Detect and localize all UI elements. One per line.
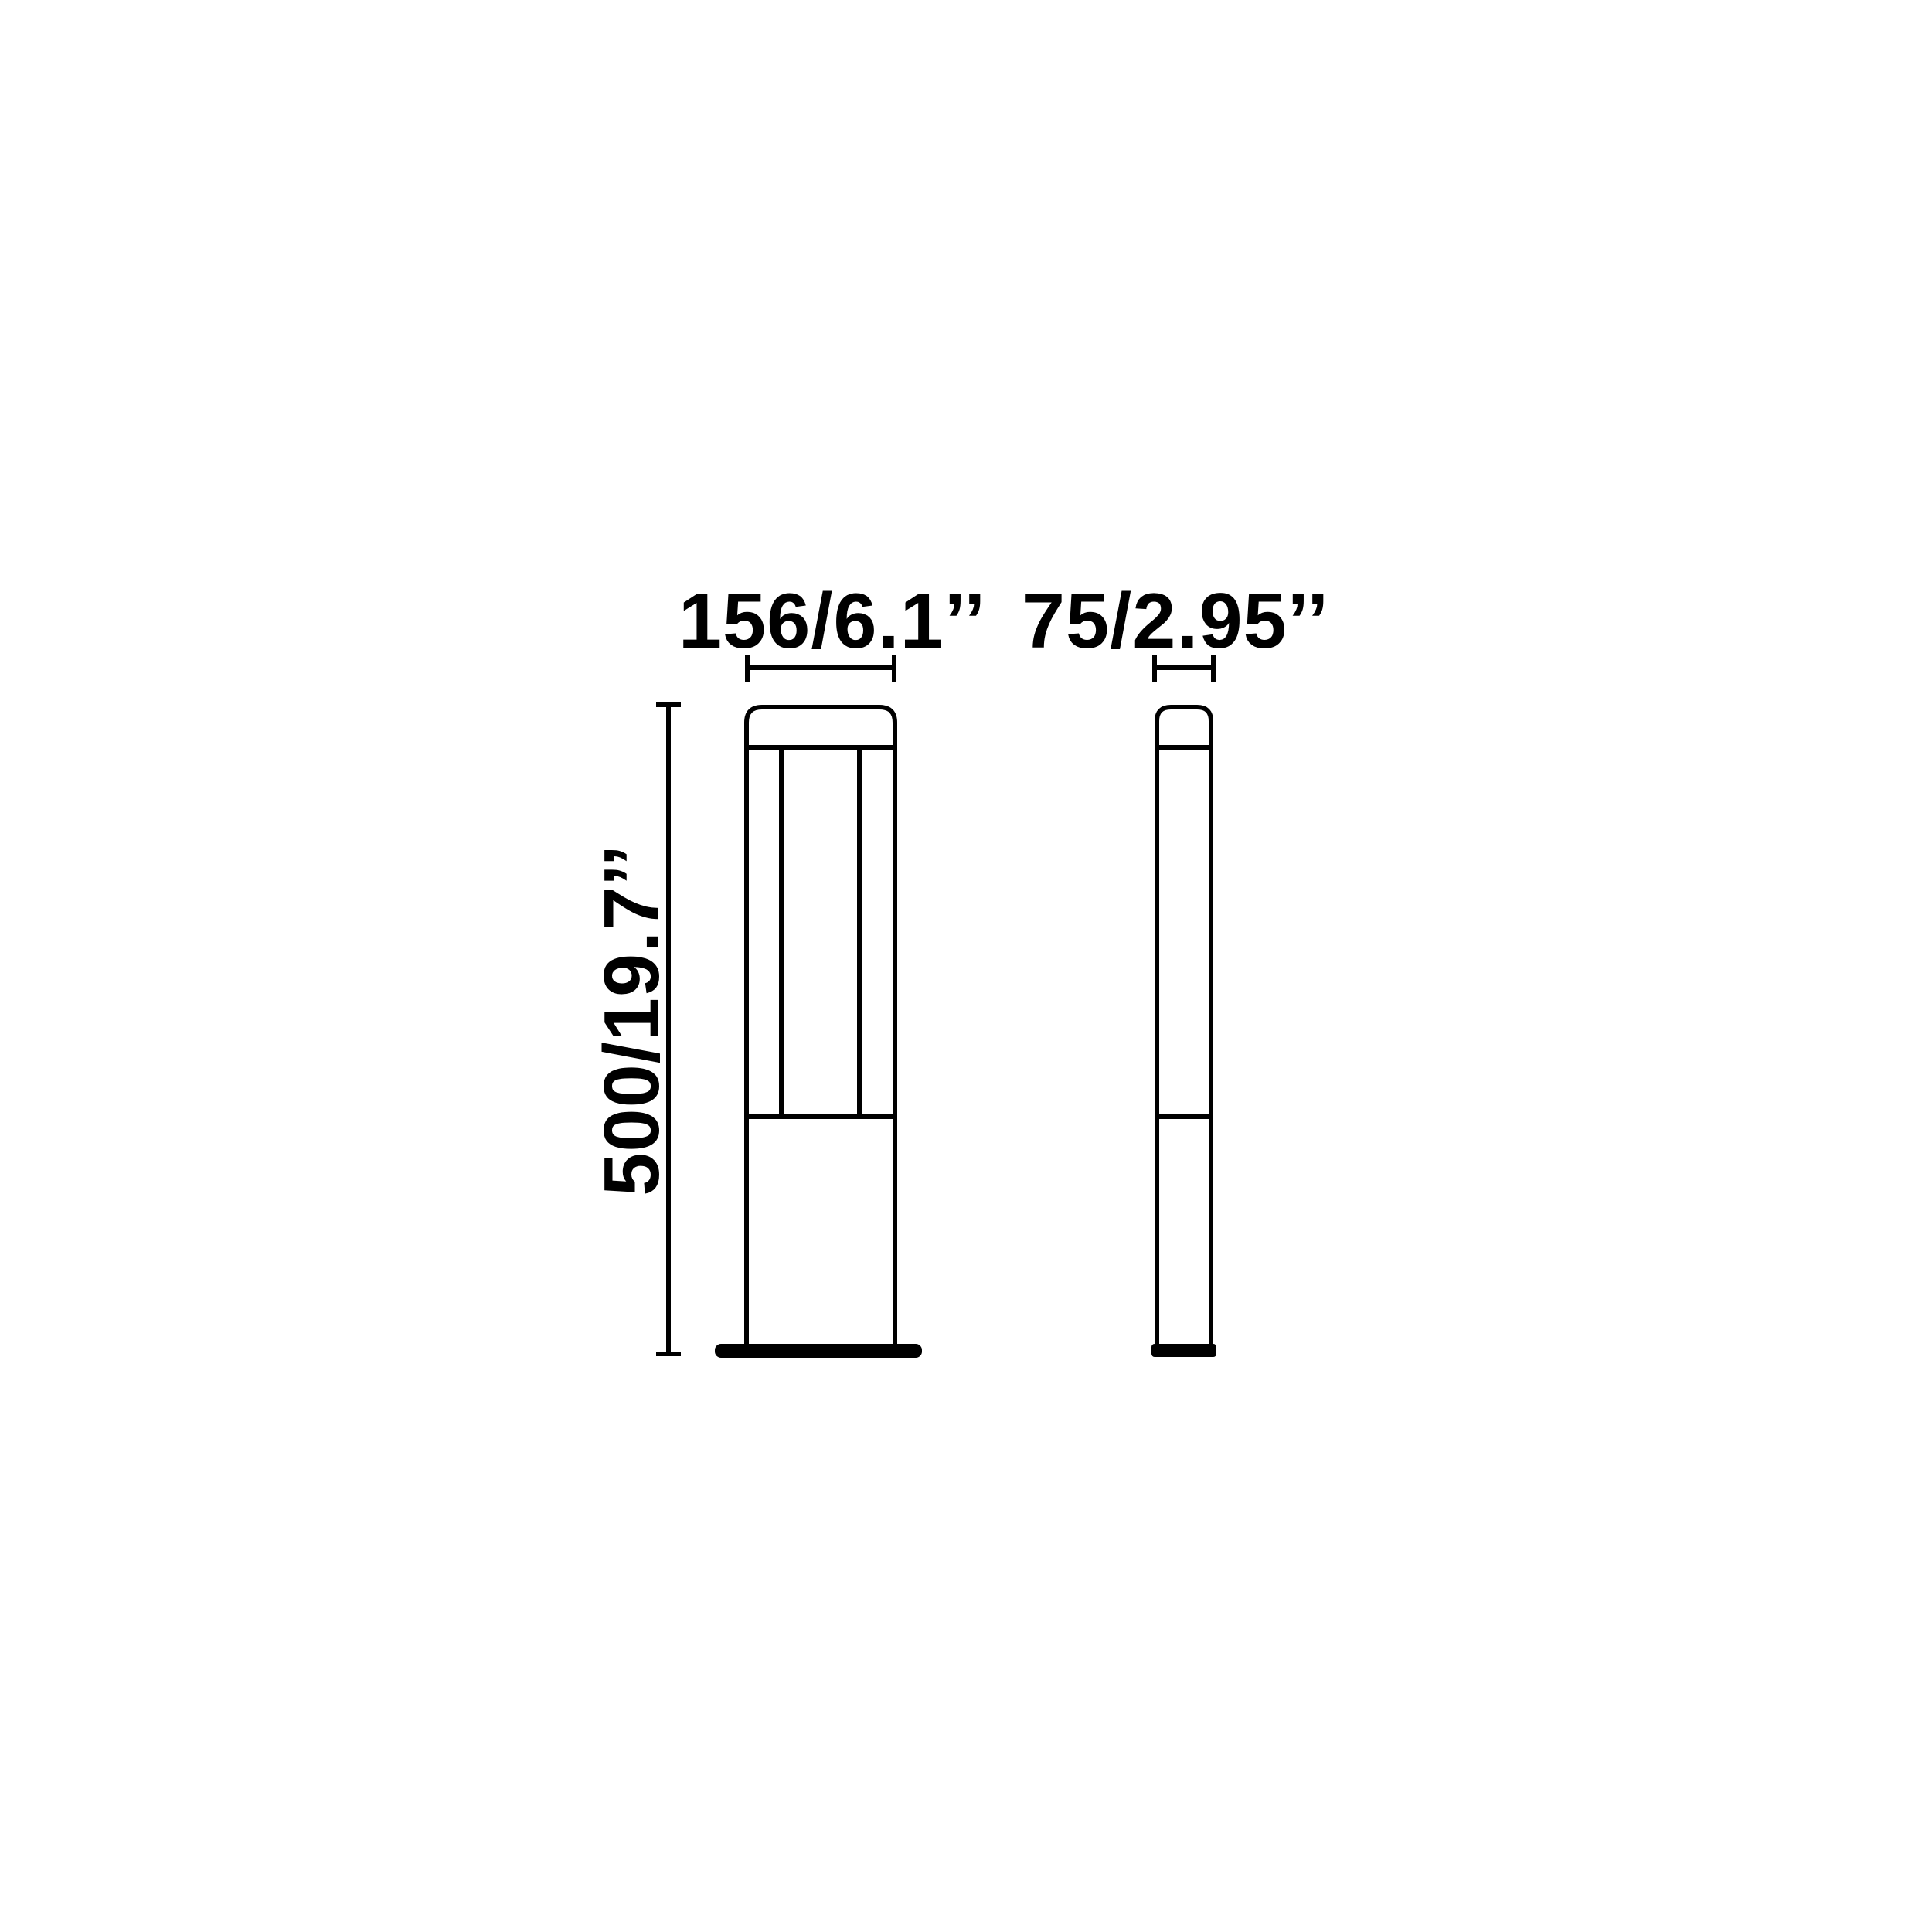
depth-dimension: 75/2.95’’	[1022, 578, 1329, 682]
height-dimension: 500/19.7’’	[589, 705, 681, 1354]
height-dimension-label: 500/19.7’’	[589, 844, 675, 1196]
side-base-plate	[1151, 1344, 1216, 1357]
front-view	[715, 707, 922, 1358]
diagram-page: 156/6.1’’ 75/2.95’’ 500/19.7’’	[0, 0, 1932, 1932]
depth-dimension-label: 75/2.95’’	[1022, 578, 1329, 665]
width-dimension-label: 156/6.1’’	[679, 578, 986, 665]
front-body-outline	[747, 707, 895, 1344]
side-body-outline	[1157, 707, 1211, 1344]
side-view	[1151, 707, 1216, 1357]
front-base-plate	[715, 1344, 922, 1358]
technical-drawing-canvas: 156/6.1’’ 75/2.95’’ 500/19.7’’	[0, 0, 1932, 1932]
width-dimension: 156/6.1’’	[679, 578, 986, 682]
